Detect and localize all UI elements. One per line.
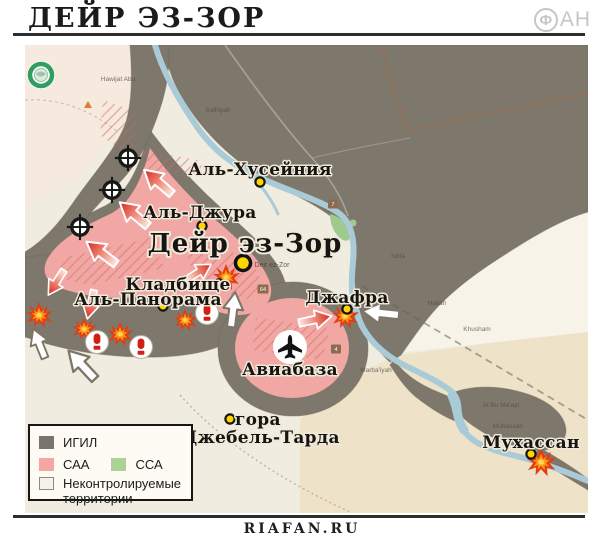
map-label-airbase: Авиабаза [242,360,338,380]
poi-dot [225,414,234,423]
map-label-panorama: Аль-Панорама [74,290,222,310]
legend-row-2: САА ССА [39,453,191,475]
globe-badge-icon [27,61,55,89]
fan-logo-circle-letter: Ф [534,8,558,32]
fan-logo-text: АН [560,8,591,32]
svg-text:Hatlah: Hatlah [428,300,447,307]
svg-text:Deir ez-Zor: Deir ez-Zor [254,262,290,269]
watermark: RIAFAN.RU [0,521,604,537]
fan-agency-logo: Ф АН [534,8,591,32]
map-label-jura: Аль-Джура [143,203,256,223]
legend-swatch-igil [39,436,54,449]
svg-text:Khusham: Khusham [463,326,490,333]
legend-swatch-saa [39,458,54,471]
svg-text:Salhiyah: Salhiyah [206,107,231,114]
legend-label-ssa: ССА [135,457,162,472]
legend: ИГИЛ САА ССА Неконтролируемые территории [28,424,193,501]
airplane-icon [273,330,307,364]
svg-text:Marba'iyah: Marba'iyah [360,367,392,374]
artillery-shell-icon [86,331,109,354]
page-title: ДЕЙР ЭЗ-ЗОР [28,3,265,34]
legend-label-igil: ИГИЛ [63,435,97,450]
legend-item-ssa: ССА [111,457,162,472]
svg-text:Ishla: Ishla [391,253,405,260]
svg-text:Hawijat Abu: Hawijat Abu [101,76,136,83]
header-rule [13,33,585,36]
legend-item-igil: ИГИЛ [39,431,191,453]
legend-label-uncontrolled: Неконтролируемые территории [63,477,181,506]
svg-text:4: 4 [334,347,337,353]
map-label-husseiniya: Аль-Хусейния [188,160,332,180]
map-label-muhassan: Мухассан [482,433,579,453]
map-label-jafra: Джафра [305,288,388,308]
svg-text:7: 7 [331,202,334,208]
infographic-page: ДЕЙР ЭЗ-ЗОР Ф АН [0,0,604,541]
svg-text:64: 64 [260,287,266,293]
svg-text:Al Bu Ma'ayt: Al Bu Ma'ayt [483,402,519,409]
map-label-city: Дейр эз-Зор [148,229,343,259]
legend-swatch-ssa [111,458,126,471]
footer-rule [13,515,585,518]
svg-text:Muhassan: Muhassan [493,423,523,430]
artillery-shell-icon [130,336,153,359]
legend-item-uncontrolled: Неконтролируемые территории [39,477,191,506]
legend-label-saa: САА [63,457,89,472]
legend-swatch-uncontrolled [39,477,54,490]
